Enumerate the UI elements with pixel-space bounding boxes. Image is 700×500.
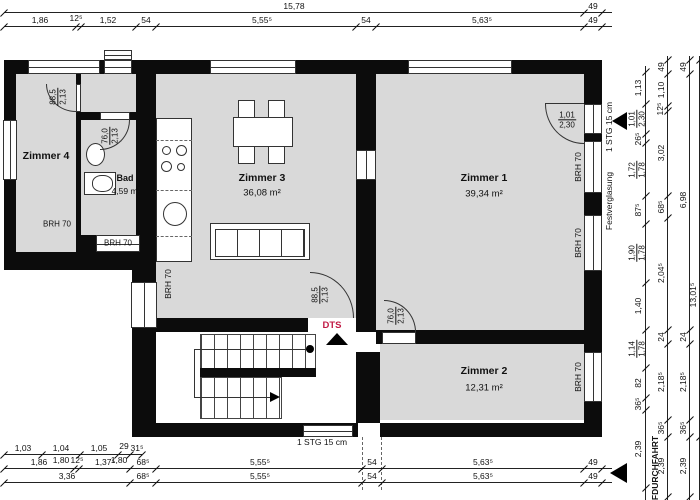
door-size-zimmer1: 1,012,30: [558, 110, 576, 129]
kitchen-sink: [163, 202, 187, 226]
dim: 54: [367, 457, 376, 467]
brh-label-zimmer1-b: BRH 70: [573, 228, 583, 258]
room-label-zimmer1: Zimmer 1: [461, 172, 508, 184]
dimension-tick: [0, 451, 8, 459]
stove-burner: [177, 163, 185, 171]
stair-exit-step: [303, 425, 353, 437]
dimension-tick: [0, 9, 8, 17]
door-leaf-zimmer2: [382, 332, 416, 344]
dim: 1,10: [656, 82, 666, 99]
dim: 3,36: [59, 471, 76, 481]
dimension-tick: [0, 465, 8, 473]
dim: 2,39: [678, 458, 688, 475]
window-zimmer4-top: [28, 60, 100, 74]
dimension-tick: [0, 479, 8, 487]
dimension-tick: [664, 493, 672, 500]
dim: 24: [678, 332, 688, 341]
dim: 68⁵: [137, 457, 150, 467]
window-stairwell-west: [131, 282, 157, 328]
dimension-tick: [152, 479, 160, 487]
dim: 1,86: [31, 457, 48, 467]
dimension-tick: [696, 433, 700, 441]
dim: 31⁵: [131, 443, 144, 453]
door-opening-zimmer3: [356, 150, 376, 180]
brh-label-zimmer2: BRH 70: [573, 362, 583, 392]
dim: 12⁵: [655, 103, 665, 116]
dim: 24: [656, 332, 666, 341]
room-area-zimmer2: 12,31 m²: [465, 383, 503, 394]
dim: 87⁵: [633, 204, 643, 217]
dimension-tick: [126, 465, 134, 473]
dimension-tick: [598, 479, 606, 487]
dimension-tick: [152, 465, 160, 473]
dimension-tick: [642, 394, 650, 402]
wall-stair-east: [356, 352, 380, 423]
door-opening-hall-top: [104, 60, 132, 74]
room-area-bad: 4,59 m²: [112, 186, 141, 196]
dim: 2,18⁵: [656, 372, 666, 392]
dimension-tick: [152, 23, 160, 31]
dimension-tick: [642, 279, 650, 287]
dimension-tick: [686, 493, 694, 500]
dim: 5,63⁵: [473, 457, 493, 467]
window-zimmer1-top: [408, 60, 512, 74]
brh-label-zimmer4: BRH 70: [43, 220, 71, 229]
dim-line-top-1: [4, 12, 612, 13]
dimension-tick: [664, 214, 672, 222]
dim: 54: [361, 15, 370, 25]
entry-arrow-left-icon: [612, 112, 627, 130]
stove-burner: [162, 146, 171, 155]
dim: 1,52: [100, 15, 117, 25]
dim: 3,02: [656, 145, 666, 162]
stove-burner: [161, 161, 172, 172]
room-hall: [81, 74, 136, 112]
kitchen-divider: [156, 190, 192, 191]
dim: 1,40: [633, 298, 643, 315]
door-size-dts: 88,52,13: [310, 286, 329, 304]
dts-door-label: DTS: [308, 318, 356, 332]
dim-frac: 1,721,78: [627, 161, 646, 179]
dim: 5,55⁵: [250, 457, 270, 467]
brh-label-zimmer1-a: BRH 70: [573, 152, 583, 182]
door-opening-entry-z1: [584, 104, 602, 134]
window-zimmer3-top: [210, 60, 296, 74]
dim: 49: [588, 471, 597, 481]
dim: 68⁵: [656, 201, 666, 214]
room-label-zimmer2: Zimmer 2: [461, 365, 508, 377]
dim: 1,37⁵: [95, 457, 115, 467]
stair-landing: [200, 368, 316, 377]
dim: 1,86: [32, 15, 49, 25]
dimension-tick: [642, 364, 650, 372]
brh-label-bad: BRH 70: [104, 239, 132, 248]
kitchen-divider: [156, 236, 192, 237]
dim: 12⁵: [70, 13, 83, 23]
dimension-tick: [0, 23, 8, 31]
stair-flight-upper: [200, 334, 316, 369]
dim-line-right-A: [645, 66, 646, 500]
dimension-tick: [642, 220, 650, 228]
window-zimmer4-left: [3, 120, 17, 180]
dimension-tick: [664, 192, 672, 200]
dim: 49: [588, 457, 597, 467]
door-leaf-bad: [100, 112, 130, 120]
dim: 49: [678, 62, 688, 71]
kitchen-divider: [156, 140, 192, 141]
entrance-arrow-up-icon: [326, 333, 348, 345]
dimension-tick: [642, 68, 650, 76]
dimension-tick: [352, 23, 360, 31]
walk-line-arrow-icon: [270, 392, 280, 402]
chair: [238, 146, 255, 164]
dimension-tick: [580, 9, 588, 17]
dim: 82: [633, 378, 643, 387]
dim: 12⁵: [71, 455, 84, 465]
door-opening-bottom: [358, 423, 380, 437]
dim-total-height: 13,01⁵: [688, 283, 698, 308]
dim: 5,55⁵: [252, 15, 272, 25]
door-size-zimmer2: 76,02,13: [386, 307, 405, 325]
dim-line-right-C: [689, 56, 690, 500]
dim: 54: [141, 15, 150, 25]
dim: 49: [588, 15, 597, 25]
dim-total-width: 15,78: [283, 1, 304, 11]
dimension-tick: [580, 479, 588, 487]
dim: 29: [119, 441, 128, 451]
dim: 36⁵: [633, 398, 643, 411]
wall-stair-west: [132, 252, 156, 437]
dimension-tick: [598, 23, 606, 31]
chair: [238, 100, 255, 118]
dimension-tick: [598, 465, 606, 473]
window-zimmer2-right: [584, 352, 602, 402]
bathtub-basin: [92, 175, 113, 192]
dim: 54: [367, 471, 376, 481]
dim: 5,63⁵: [472, 15, 492, 25]
dimension-tick: [642, 130, 650, 138]
dimension-tick: [642, 100, 650, 108]
dimension-tick: [642, 326, 650, 334]
floor-plan: 88,52,13 76,02,13 DTS 88,52,13 76,02,13 …: [0, 0, 700, 500]
walk-line-start-dot: [306, 345, 314, 353]
room-label-zimmer3: Zimmer 3: [239, 172, 286, 184]
dim: 2,04⁵: [656, 263, 666, 283]
stair-walk-line: [194, 397, 270, 398]
dimension-tick: [132, 23, 140, 31]
door-size-bad: 76,02,13: [100, 127, 119, 145]
dimension-tick: [580, 23, 588, 31]
dim: 5,63⁵: [473, 471, 493, 481]
brh-label-stairwell: BRH 70: [163, 269, 173, 299]
door-size-zimmer4: 88,52,13: [48, 88, 67, 106]
sofa-seats: [215, 229, 305, 257]
door-leaf-zimmer4: [76, 84, 81, 112]
room-label-bad: Bad: [116, 173, 133, 183]
entry-step-top: [104, 50, 132, 60]
step-label-bottom: 1 STG 15 cm: [297, 437, 347, 447]
dim-line-bottom-3: [4, 482, 612, 483]
dim-line-right-B: [667, 56, 668, 500]
wall-kitchen: [136, 60, 156, 252]
dim-line-bottom-2: [4, 468, 612, 469]
dim-line-top-2: [4, 26, 612, 27]
dim: 1,04: [53, 443, 70, 453]
room-label-zimmer4: Zimmer 4: [23, 150, 70, 162]
passage-arrow-left-icon: [610, 463, 627, 483]
dining-table: [233, 117, 293, 147]
dim: 1,13: [633, 80, 643, 97]
chair: [268, 100, 285, 118]
dim: 68⁵: [137, 471, 150, 481]
dimension-tick: [696, 56, 700, 64]
dimension-tick: [372, 23, 380, 31]
room-area-zimmer1: 39,34 m²: [465, 189, 503, 200]
dim-frac: 1,901,78: [627, 244, 646, 262]
dim-frac: 1,012,30: [627, 110, 646, 128]
dim: 6,98: [678, 192, 688, 209]
stair-walk-line: [194, 349, 312, 350]
dim: 49: [656, 62, 666, 71]
dim: 5,55⁵: [250, 471, 270, 481]
dimension-tick: [378, 465, 386, 473]
dimension-tick: [580, 465, 588, 473]
dim: 2,39: [656, 458, 666, 475]
window-zimmer1-right-1: [584, 141, 602, 193]
dim-frac: 1,141,78: [627, 340, 646, 358]
wall-z3-east: [356, 60, 376, 332]
dimension-tick: [642, 484, 650, 492]
fixed-glazing-label: Festverglasung: [604, 172, 614, 230]
dim-sub: 1,80: [53, 455, 70, 465]
dimension-tick: [642, 192, 650, 200]
stair-walk-line: [194, 349, 195, 398]
dim: 26⁵: [633, 133, 643, 146]
dim-wall: 49: [588, 1, 597, 11]
dim: 36⁵: [678, 422, 688, 435]
dim: 2,39: [633, 441, 643, 458]
dimension-tick: [642, 139, 650, 147]
dimension-tick: [642, 406, 650, 414]
dimension-tick: [598, 9, 606, 17]
dim: 1,05: [91, 443, 108, 453]
dimension-tick: [378, 479, 386, 487]
room-area-zimmer3: 36,08 m²: [243, 188, 281, 199]
dim: 1,03: [15, 443, 32, 453]
window-zimmer1-right-2: [584, 215, 602, 271]
stove-burner: [176, 145, 187, 156]
dim: 2,18⁵: [678, 372, 688, 392]
dimension-tick: [126, 479, 134, 487]
chair: [268, 146, 285, 164]
dim: 36⁵: [656, 422, 666, 435]
